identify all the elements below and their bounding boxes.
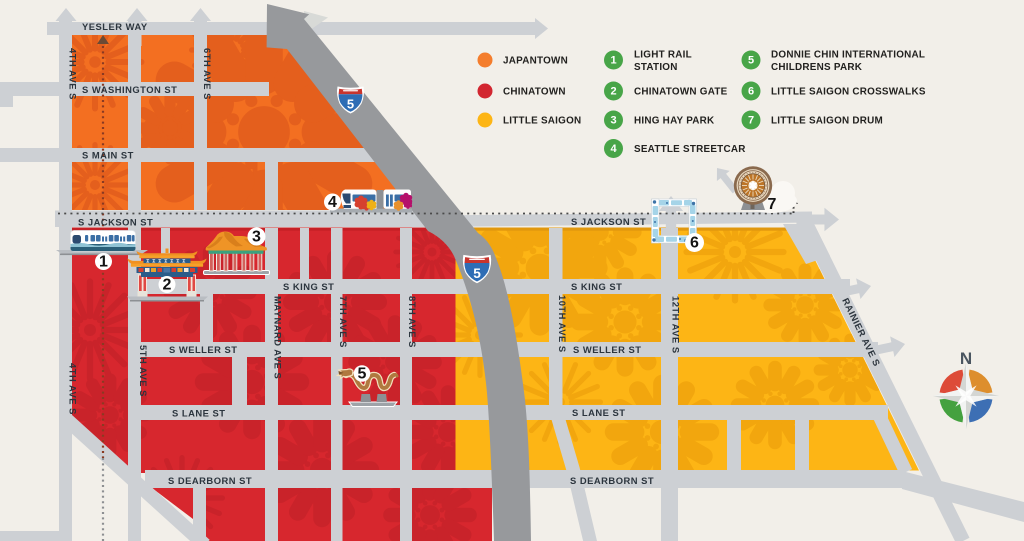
- svg-text:1: 1: [99, 254, 108, 271]
- svg-text:LIGHT RAIL: LIGHT RAIL: [634, 50, 692, 61]
- svg-text:DONNIE CHIN INTERNATIONAL: DONNIE CHIN INTERNATIONAL: [771, 50, 925, 61]
- svg-text:5: 5: [358, 366, 367, 383]
- svg-text:LITTLE SAIGON CROSSWALKS: LITTLE SAIGON CROSSWALKS: [771, 87, 926, 98]
- svg-text:7: 7: [768, 196, 777, 213]
- svg-text:1: 1: [610, 55, 616, 67]
- svg-text:LITTLE SAIGON DRUM: LITTLE SAIGON DRUM: [771, 116, 883, 127]
- svg-text:5: 5: [473, 266, 481, 281]
- svg-text:5: 5: [748, 55, 754, 67]
- svg-text:CHINATOWN GATE: CHINATOWN GATE: [634, 87, 728, 98]
- svg-text:S LANE ST: S LANE ST: [572, 407, 625, 418]
- svg-text:2: 2: [163, 277, 172, 294]
- svg-text:6: 6: [748, 86, 754, 98]
- svg-text:S WELLER ST: S WELLER ST: [169, 344, 238, 355]
- svg-text:S LANE ST: S LANE ST: [172, 408, 225, 419]
- svg-text:3: 3: [610, 115, 616, 127]
- svg-text:S JACKSON ST: S JACKSON ST: [78, 217, 153, 228]
- svg-text:STATION: STATION: [634, 62, 678, 73]
- svg-text:S KING ST: S KING ST: [283, 281, 334, 292]
- svg-text:S KING ST: S KING ST: [571, 281, 622, 292]
- svg-text:6: 6: [690, 235, 699, 252]
- svg-text:S WASHINGTON ST: S WASHINGTON ST: [82, 84, 177, 95]
- svg-text:LITTLE SAIGON: LITTLE SAIGON: [503, 116, 581, 127]
- svg-text:10TH AVE S: 10TH AVE S: [557, 295, 568, 353]
- svg-text:S MAIN ST: S MAIN ST: [82, 150, 134, 161]
- svg-text:2: 2: [610, 86, 616, 98]
- svg-text:MAYNARD AVE S: MAYNARD AVE S: [273, 296, 284, 379]
- svg-text:CHILDRENS PARK: CHILDRENS PARK: [771, 62, 863, 73]
- svg-text:8TH AVE S: 8TH AVE S: [407, 296, 418, 348]
- svg-text:S DEARBORN ST: S DEARBORN ST: [168, 475, 252, 486]
- svg-text:S WELLER ST: S WELLER ST: [573, 344, 642, 355]
- svg-text:4: 4: [610, 143, 617, 155]
- svg-text:S DEARBORN ST: S DEARBORN ST: [570, 475, 654, 486]
- svg-text:12TH AVE S: 12TH AVE S: [671, 296, 682, 354]
- svg-text:4TH AVE S: 4TH AVE S: [68, 363, 79, 415]
- svg-text:7TH AVE S: 7TH AVE S: [338, 296, 349, 348]
- svg-text:4TH AVE S: 4TH AVE S: [68, 48, 79, 100]
- svg-text:4: 4: [328, 194, 337, 211]
- svg-text:5TH AVE S: 5TH AVE S: [138, 345, 149, 397]
- svg-text:3: 3: [252, 229, 261, 246]
- svg-text:S JACKSON ST: S JACKSON ST: [571, 216, 646, 227]
- svg-text:JAPANTOWN: JAPANTOWN: [503, 56, 568, 67]
- svg-text:HING HAY PARK: HING HAY PARK: [634, 116, 715, 127]
- svg-text:YESLER WAY: YESLER WAY: [82, 21, 148, 32]
- svg-text:SEATTLE STREETCAR: SEATTLE STREETCAR: [634, 144, 746, 155]
- svg-text:5: 5: [347, 97, 354, 112]
- svg-text:CHINATOWN: CHINATOWN: [503, 87, 566, 98]
- svg-text:6TH AVE S: 6TH AVE S: [202, 48, 213, 100]
- svg-text:7: 7: [748, 115, 754, 127]
